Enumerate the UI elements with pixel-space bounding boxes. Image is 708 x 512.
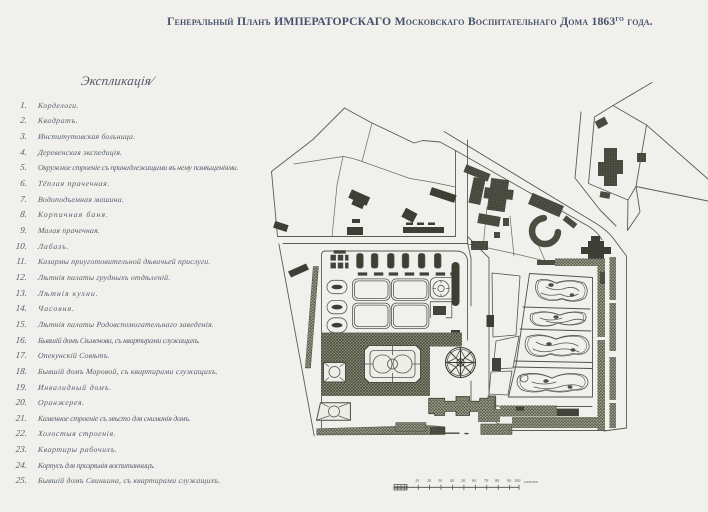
svg-text:100: 100 [514,478,521,483]
svg-text:саженъ: саженъ [524,479,539,484]
